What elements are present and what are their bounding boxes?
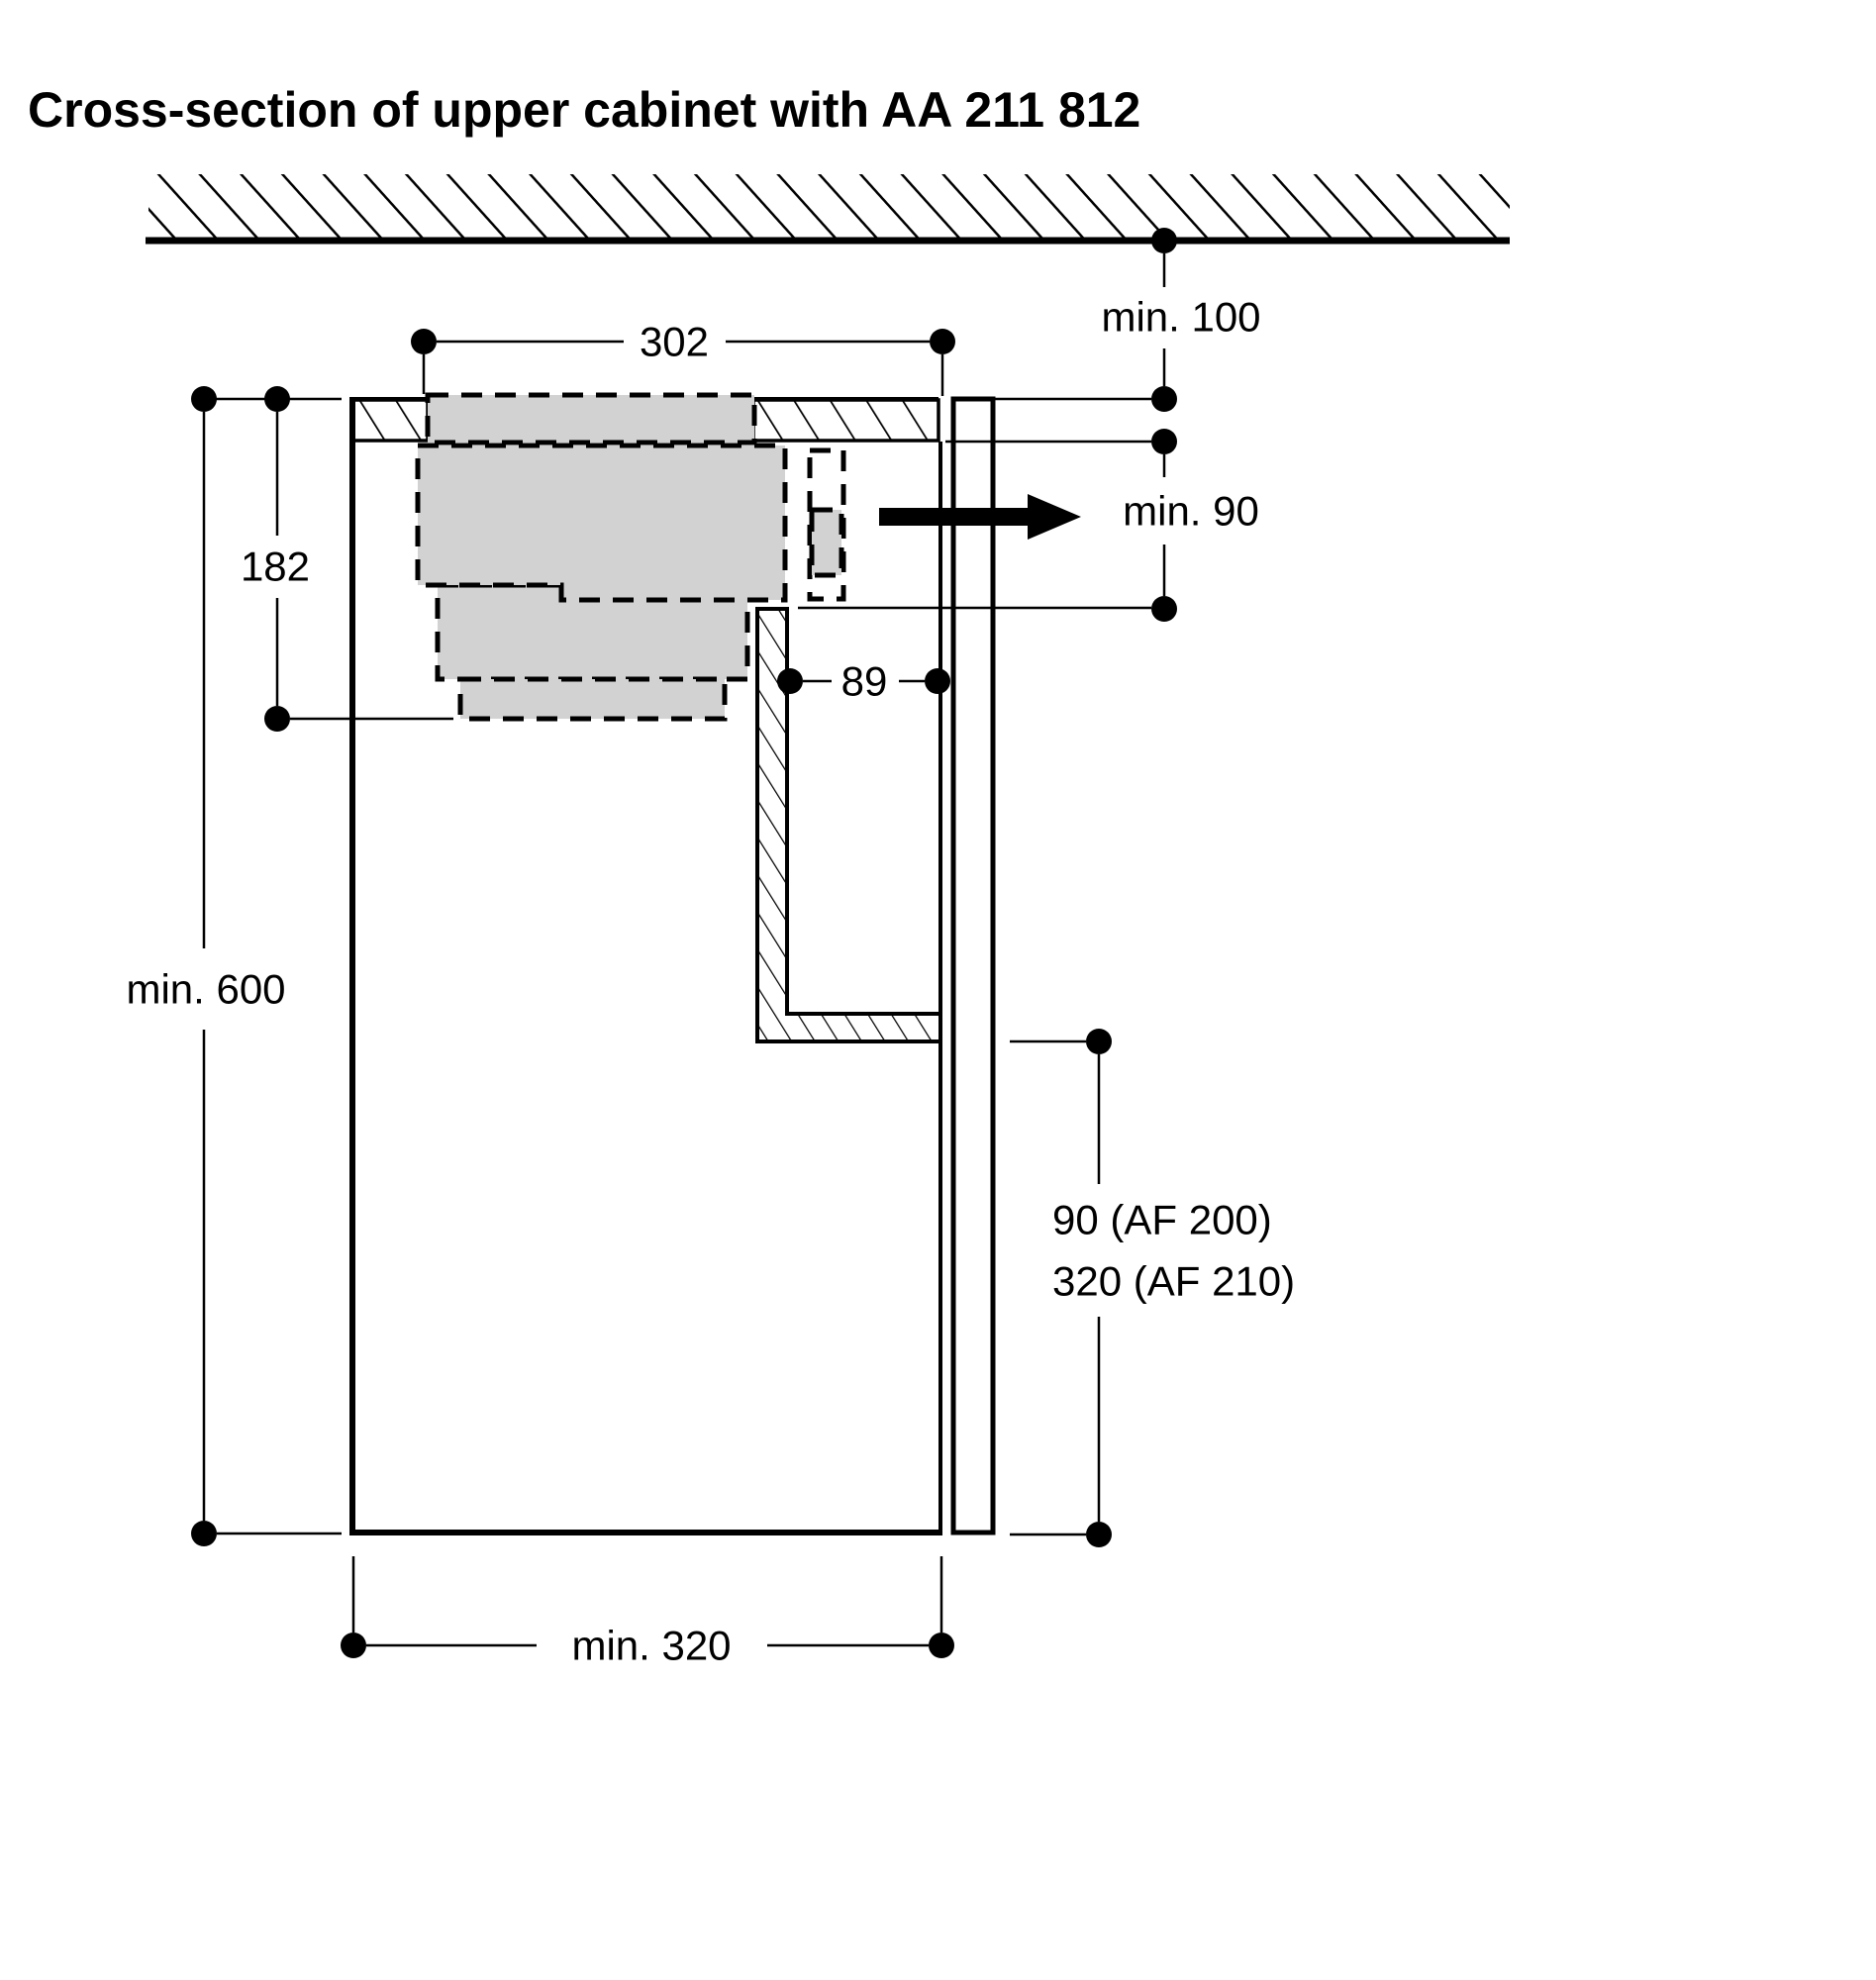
dim-dot [1151,228,1177,253]
top-panel-left-section [353,400,428,441]
dim-dot [1151,429,1177,454]
dim-duct-to-wall: 89 [777,658,950,705]
dim-dot [341,1633,366,1658]
dim-label-vent-af200: 90 (AF 200) [1052,1197,1272,1243]
dim-dot [191,386,217,412]
ceiling [146,174,1510,241]
door-panel [953,399,993,1533]
diagram-page: Cross-section of upper cabinet with AA 2… [0,0,1876,1980]
dim-dot [925,668,950,694]
dim-label-cabinet-depth: min. 320 [571,1623,731,1669]
dim-dot [1086,1029,1112,1054]
page-title: Cross-section of upper cabinet with AA 2… [28,82,1140,138]
dim-top-width: 302 [411,319,955,397]
dim-label-top-width: 302 [640,319,709,365]
ceiling-hatch [148,174,1510,239]
dim-cabinet-depth: min. 320 [341,1556,954,1669]
dim-dot [1151,596,1177,622]
dim-label-duct-to-wall: 89 [841,658,888,705]
fan-unit-tier4 [460,679,725,719]
duct-connector [812,510,841,575]
top-panel-right-section [753,400,938,441]
dim-dot [930,329,955,354]
dim-label-ceiling-gap: min. 100 [1101,294,1260,341]
dim-label-rear-gap: min. 90 [1123,488,1259,535]
dim-dot [929,1633,954,1658]
fan-unit-body [418,445,785,600]
dim-dot [411,329,437,354]
dim-ceiling-gap: min. 100 [995,228,1261,412]
dim-dot [264,706,290,732]
dim-dot [777,668,803,694]
cross-section-drawing: Cross-section of upper cabinet with AA 2… [0,0,1876,1980]
dim-label-vent-af210: 320 (AF 210) [1052,1258,1295,1305]
dim-dot [1086,1522,1112,1547]
dim-vent-position: 90 (AF 200) 320 (AF 210) [1010,1029,1295,1547]
fan-unit-top-collar [428,395,754,443]
dim-label-cabinet-height: min. 600 [126,966,285,1013]
dim-dot [191,1521,217,1546]
dim-label-appliance-height: 182 [241,544,310,590]
dim-dot [1151,386,1177,412]
